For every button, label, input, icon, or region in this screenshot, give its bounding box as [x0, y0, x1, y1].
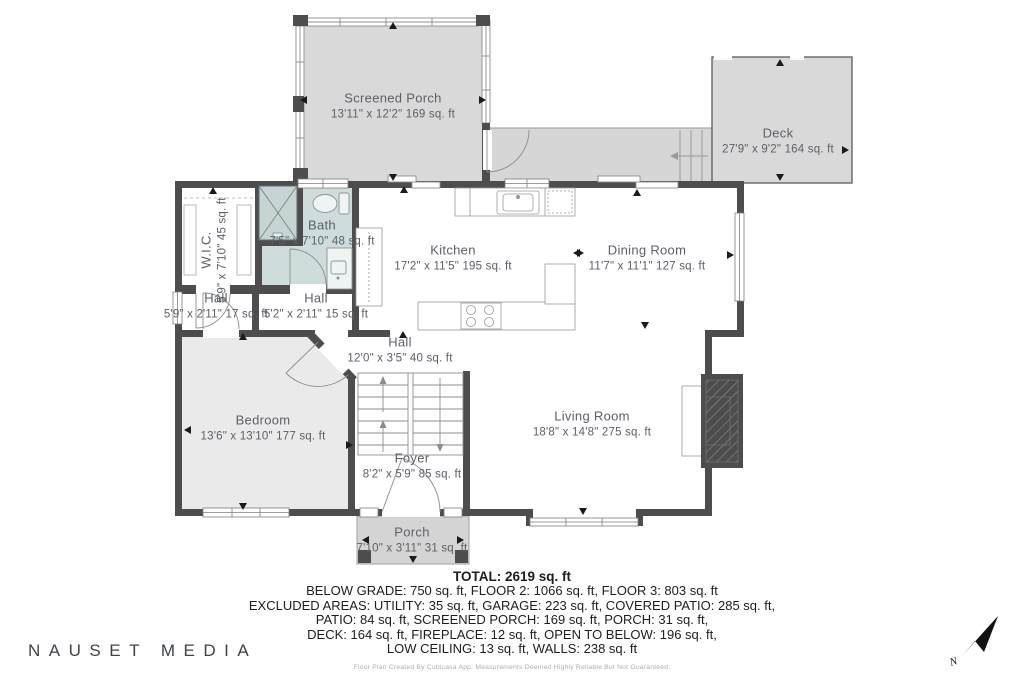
room-label-screened-porch: Screened Porch 13'11" x 12'2" 169 sq. ft: [331, 89, 455, 122]
room-label-hall-center: Hall 12'0" x 3'5" 40 sq. ft: [347, 333, 452, 366]
room-label-deck: Deck 27'9" x 9'2" 164 sq. ft: [722, 124, 834, 157]
summary-line: BELOW GRADE: 750 sq. ft, FLOOR 2: 1066 s…: [0, 584, 1024, 599]
fireplace: [682, 374, 743, 468]
room-label-hall-right: Hall 5'2" x 2'11" 15 sq. ft: [264, 289, 368, 322]
room-label-hall-left: Hall 5'9" x 2'11" 17 sq. ft: [164, 289, 268, 322]
nauset-media-watermark: NAUSET MEDIA: [28, 641, 257, 661]
floor-plan-page: N Screened Porch 13'11" x 12'2" 169 sq. …: [0, 0, 1024, 683]
room-label-porch: Porch 7'10" x 3'11" 31 sq. ft: [357, 523, 468, 556]
disclaimer-text: Floor Plan Created By Cubicasa App. Meas…: [0, 664, 1024, 671]
foyer-stairs: [358, 373, 463, 455]
room-label-dining: Dining Room 11'7" x 11'1" 127 sq. ft: [589, 241, 706, 274]
room-label-bedroom: Bedroom 13'6" x 13'10" 177 sq. ft: [201, 411, 326, 444]
total-area-text: TOTAL: 2619 sq. ft: [0, 569, 1024, 584]
room-label-bath: Bath 7'5" x 7'10" 48 sq. ft: [269, 216, 374, 249]
room-label-kitchen: Kitchen 17'2" x 11'5" 195 sq. ft: [394, 241, 512, 274]
deck-area: [712, 55, 852, 183]
room-label-wic: W.I.C. 5'9" x 7'10" 45 sq. ft: [197, 197, 230, 302]
room-label-foyer: Foyer 8'2" x 5'9" 85 sq. ft: [363, 449, 462, 482]
summary-line: EXCLUDED AREAS: UTILITY: 35 sq. ft, GARA…: [0, 599, 1024, 614]
summary-line: PATIO: 84 sq. ft, SCREENED PORCH: 169 sq…: [0, 613, 1024, 628]
room-label-living: Living Room 18'8" x 14'8" 275 sq. ft: [533, 407, 651, 440]
